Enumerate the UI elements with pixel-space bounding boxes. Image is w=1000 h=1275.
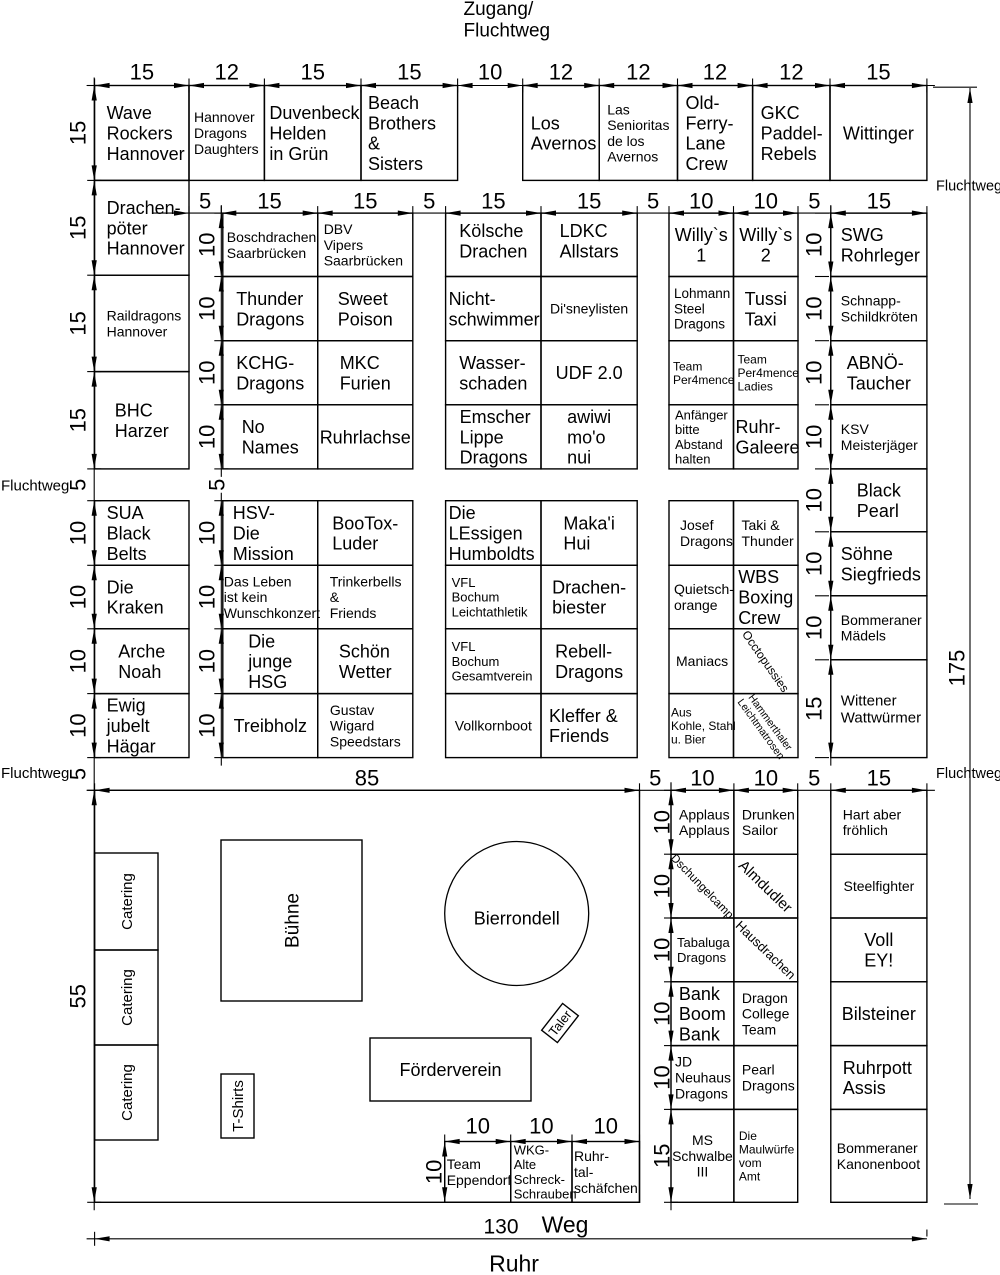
svg-text:BommeranerKanonenboot: BommeranerKanonenboot [837, 1140, 920, 1172]
svg-text:15: 15 [481, 189, 505, 214]
svg-text:VollEY!: VollEY! [864, 930, 893, 970]
svg-text:10: 10 [801, 616, 826, 640]
svg-text:10: 10 [529, 1114, 553, 1139]
svg-text:BoschdrachenSaarbrücken: BoschdrachenSaarbrücken [227, 229, 317, 261]
svg-text:Treibholz: Treibholz [234, 716, 307, 736]
svg-text:10: 10 [754, 766, 778, 791]
svg-text:Fluchtweg: Fluchtweg [936, 766, 1000, 782]
svg-text:130: 130 [484, 1216, 519, 1239]
svg-text:12: 12 [549, 60, 573, 85]
svg-text:10: 10 [194, 425, 219, 449]
svg-text:10: 10 [801, 552, 826, 576]
svg-text:10: 10 [65, 585, 90, 609]
svg-text:Fluchtweg: Fluchtweg [1, 478, 69, 495]
svg-text:175: 175 [944, 650, 969, 687]
svg-text:Bühne: Bühne [282, 893, 303, 948]
svg-text:12: 12 [626, 60, 650, 85]
svg-text:ArcheNoah: ArcheNoah [118, 642, 165, 682]
svg-text:KölscheDrachen: KölscheDrachen [459, 221, 527, 261]
svg-text:SchönWetter: SchönWetter [339, 642, 392, 682]
svg-text:Ruhrlachse: Ruhrlachse [320, 427, 411, 447]
svg-text:10: 10 [754, 189, 778, 214]
svg-text:10: 10 [194, 361, 219, 385]
svg-text:Catering: Catering [119, 1064, 136, 1121]
svg-text:15: 15 [867, 189, 891, 214]
svg-text:UDF 2.0: UDF 2.0 [556, 363, 623, 383]
svg-text:15: 15 [65, 121, 90, 145]
svg-text:10: 10 [801, 425, 826, 449]
svg-text:15: 15 [353, 189, 377, 214]
svg-text:ThunderDragons: ThunderDragons [236, 289, 304, 329]
svg-text:12: 12 [215, 60, 239, 85]
svg-text:10: 10 [194, 585, 219, 609]
svg-text:Maniacs: Maniacs [676, 653, 728, 669]
svg-text:12: 12 [703, 60, 727, 85]
svg-text:TabalugaDragons: TabalugaDragons [677, 935, 731, 965]
svg-text:10: 10 [194, 233, 219, 257]
svg-text:10: 10 [801, 361, 826, 385]
svg-text:5: 5 [647, 189, 659, 214]
svg-text:SweetPoison: SweetPoison [338, 289, 393, 329]
svg-text:Di'sneylisten: Di'sneylisten [550, 301, 628, 317]
svg-text:Ruhr: Ruhr [489, 1251, 539, 1275]
svg-text:10: 10 [65, 713, 90, 737]
svg-text:Fluchtweg: Fluchtweg [1, 765, 69, 782]
svg-text:15: 15 [301, 60, 325, 85]
svg-text:BankBoomBank: BankBoomBank [679, 984, 726, 1045]
svg-text:5: 5 [808, 189, 820, 214]
svg-text:10: 10 [65, 649, 90, 673]
svg-text:15: 15 [867, 766, 891, 791]
svg-text:Weg: Weg [542, 1212, 589, 1238]
svg-text:Catering: Catering [119, 969, 136, 1026]
svg-text:Steelfighter: Steelfighter [844, 878, 915, 894]
svg-text:10: 10 [801, 488, 826, 512]
svg-text:10: 10 [466, 1114, 490, 1139]
svg-text:10: 10 [65, 521, 90, 545]
svg-text:5: 5 [199, 189, 211, 214]
svg-text:5: 5 [204, 479, 229, 491]
svg-text:15: 15 [257, 189, 281, 214]
svg-text:85: 85 [355, 766, 379, 791]
svg-text:5: 5 [423, 189, 435, 214]
svg-text:5: 5 [808, 766, 820, 791]
svg-text:10: 10 [194, 296, 219, 320]
svg-text:15: 15 [801, 696, 826, 720]
svg-text:5: 5 [649, 766, 661, 791]
svg-text:Wasser-schaden: Wasser-schaden [459, 353, 527, 393]
svg-text:Vollkornboot: Vollkornboot [455, 718, 532, 734]
svg-text:Wittinger: Wittinger [843, 123, 914, 143]
svg-text:10: 10 [690, 766, 714, 791]
svg-text:Bierrondell: Bierrondell [474, 909, 560, 929]
svg-text:15: 15 [65, 311, 90, 335]
svg-text:10: 10 [421, 1160, 446, 1184]
svg-text:10: 10 [478, 60, 502, 85]
svg-text:15: 15 [397, 60, 421, 85]
svg-text:ABNÖ-Taucher: ABNÖ-Taucher [847, 353, 911, 393]
svg-text:ApplausApplaus: ApplausApplaus [679, 806, 730, 838]
svg-text:Kleffer &Friends: Kleffer &Friends [549, 706, 618, 746]
svg-text:10: 10 [194, 521, 219, 545]
svg-text:Catering: Catering [119, 873, 136, 930]
svg-text:15: 15 [65, 216, 90, 240]
svg-text:12: 12 [779, 60, 803, 85]
svg-text:Bilsteiner: Bilsteiner [842, 1004, 916, 1024]
svg-text:Fluchtweg: Fluchtweg [936, 179, 1000, 195]
svg-text:55: 55 [65, 984, 90, 1008]
svg-text:10: 10 [801, 296, 826, 320]
svg-text:10: 10 [689, 189, 713, 214]
svg-text:15: 15 [577, 189, 601, 214]
svg-text:15: 15 [130, 60, 154, 85]
svg-text:10: 10 [594, 1114, 618, 1139]
svg-text:BlackPearl: BlackPearl [857, 481, 902, 521]
svg-text:Förderverein: Förderverein [400, 1060, 502, 1080]
svg-text:10: 10 [194, 713, 219, 737]
svg-text:15: 15 [866, 60, 890, 85]
svg-text:10: 10 [194, 649, 219, 673]
svg-text:15: 15 [65, 408, 90, 432]
svg-text:10: 10 [801, 233, 826, 257]
svg-text:KCHG-Dragons: KCHG-Dragons [236, 353, 304, 393]
svg-text:T-Shirts: T-Shirts [230, 1080, 247, 1132]
